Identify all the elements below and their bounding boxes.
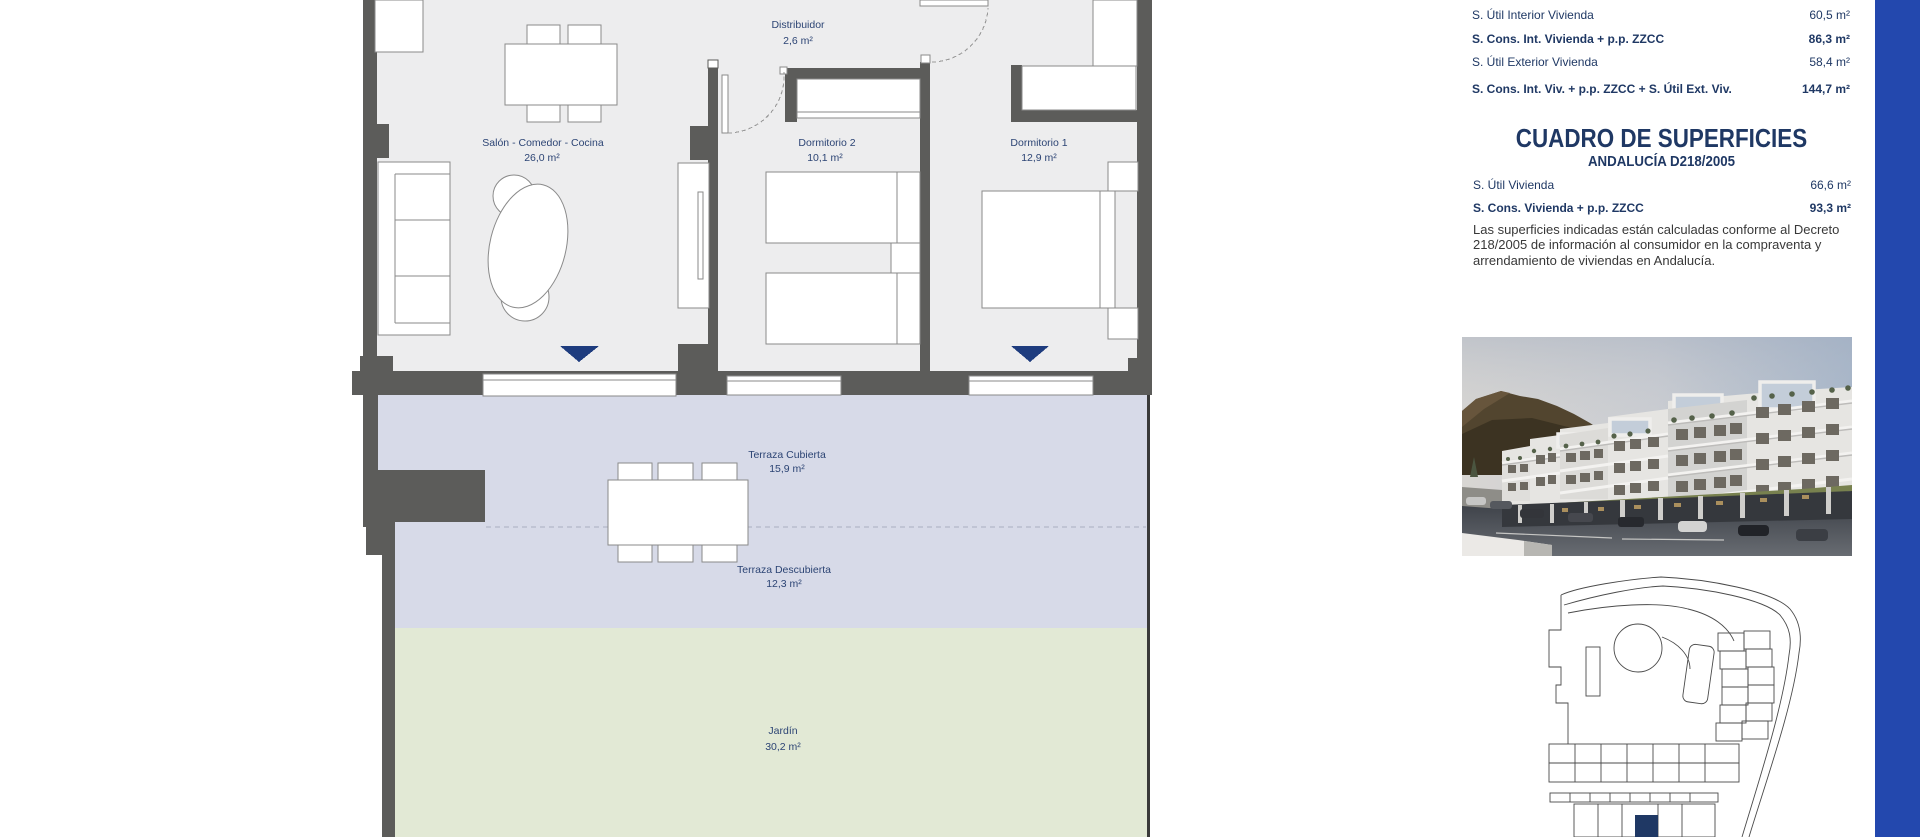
- svg-text:Dormitorio 1: Dormitorio 1: [1010, 137, 1067, 149]
- svg-text:Terraza Descubierta: Terraza Descubierta: [737, 564, 831, 576]
- svg-text:Distribuidor: Distribuidor: [771, 19, 825, 31]
- svg-text:Terraza Cubierta: Terraza Cubierta: [748, 449, 826, 461]
- svg-text:10,1 m²: 10,1 m²: [807, 152, 843, 164]
- svg-text:26,0 m²: 26,0 m²: [524, 152, 560, 164]
- svg-text:15,9 m²: 15,9 m²: [769, 463, 805, 475]
- svg-text:2,6 m²: 2,6 m²: [783, 35, 813, 47]
- svg-text:Salón - Comedor - Cocina: Salón - Comedor - Cocina: [482, 137, 604, 149]
- svg-text:Jardín: Jardín: [768, 725, 797, 737]
- svg-text:12,9 m²: 12,9 m²: [1021, 152, 1057, 164]
- svg-text:12,3 m²: 12,3 m²: [766, 578, 802, 590]
- svg-text:30,2 m²: 30,2 m²: [765, 741, 801, 753]
- svg-text:Dormitorio 2: Dormitorio 2: [798, 137, 855, 149]
